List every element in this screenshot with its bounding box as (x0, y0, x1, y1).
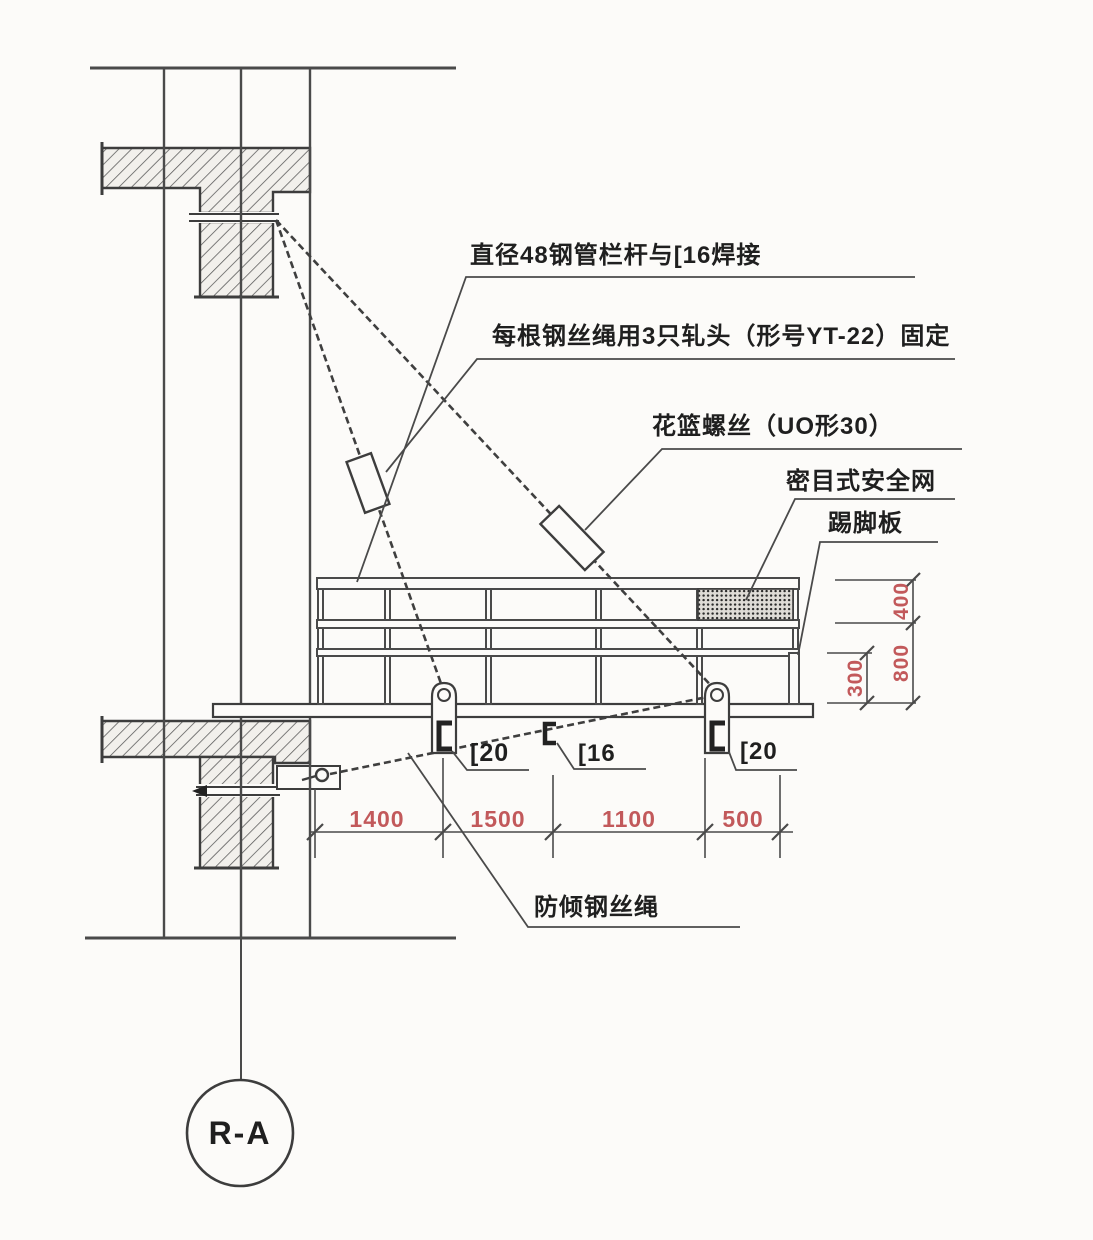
turnbuckle-left (347, 453, 390, 513)
channel-16-section (545, 724, 556, 743)
label-channel-20-left: [20 (470, 739, 509, 767)
dim-500: 500 (722, 806, 763, 832)
dim-1400: 1400 (349, 806, 404, 832)
railing (317, 578, 799, 704)
label-channel-20-right: [20 (740, 738, 778, 765)
toe-board (789, 653, 799, 704)
label-safety-net: 密目式安全网 (786, 467, 936, 495)
mid-rail (317, 620, 799, 628)
scaffold-detail-svg: 1400 1500 1100 500 400 800 300 (0, 0, 1093, 1240)
upper-anchor-plate (188, 212, 280, 223)
dim-1500: 1500 (470, 806, 525, 832)
hanger-right (705, 683, 729, 753)
lower-anchor-rod (192, 784, 281, 797)
grid-reference-bubble: R-A (187, 1080, 293, 1186)
hanger-left (432, 683, 456, 753)
right-dimension-values: 400 800 300 (844, 582, 913, 697)
lower-rail (317, 649, 799, 656)
dim-800: 800 (890, 644, 913, 682)
dim-300: 300 (844, 659, 867, 697)
dim-400: 400 (890, 582, 913, 620)
top-rail (317, 578, 799, 589)
grid-reference-label: R-A (209, 1115, 272, 1151)
label-anti-tip-rope: 防倾钢丝绳 (534, 893, 659, 921)
label-rail-weld: 直径48钢管栏杆与[16焊接 (470, 241, 761, 269)
wire-ropes (276, 220, 717, 774)
annotation-leaders (357, 277, 962, 927)
turnbuckle-right (540, 506, 603, 570)
label-rope-clips: 每根钢丝绳用3只轧头（形号YT-22）固定 (492, 322, 950, 350)
turnbuckles (347, 453, 604, 570)
safety-net-panel (698, 589, 793, 620)
dim-1100: 1100 (602, 806, 656, 832)
label-channel-16: [16 (578, 740, 616, 767)
technical-drawing: 1400 1500 1100 500 400 800 300 (0, 0, 1093, 1240)
leader-toe-board (798, 542, 938, 655)
label-turnbuckle: 花篮螺丝（UO形30） (652, 412, 894, 440)
label-toe-board: 踢脚板 (828, 510, 903, 537)
anti-tip-anchor (277, 766, 340, 789)
upper-floor-slab (102, 142, 310, 297)
lower-floor-slab (102, 716, 340, 868)
